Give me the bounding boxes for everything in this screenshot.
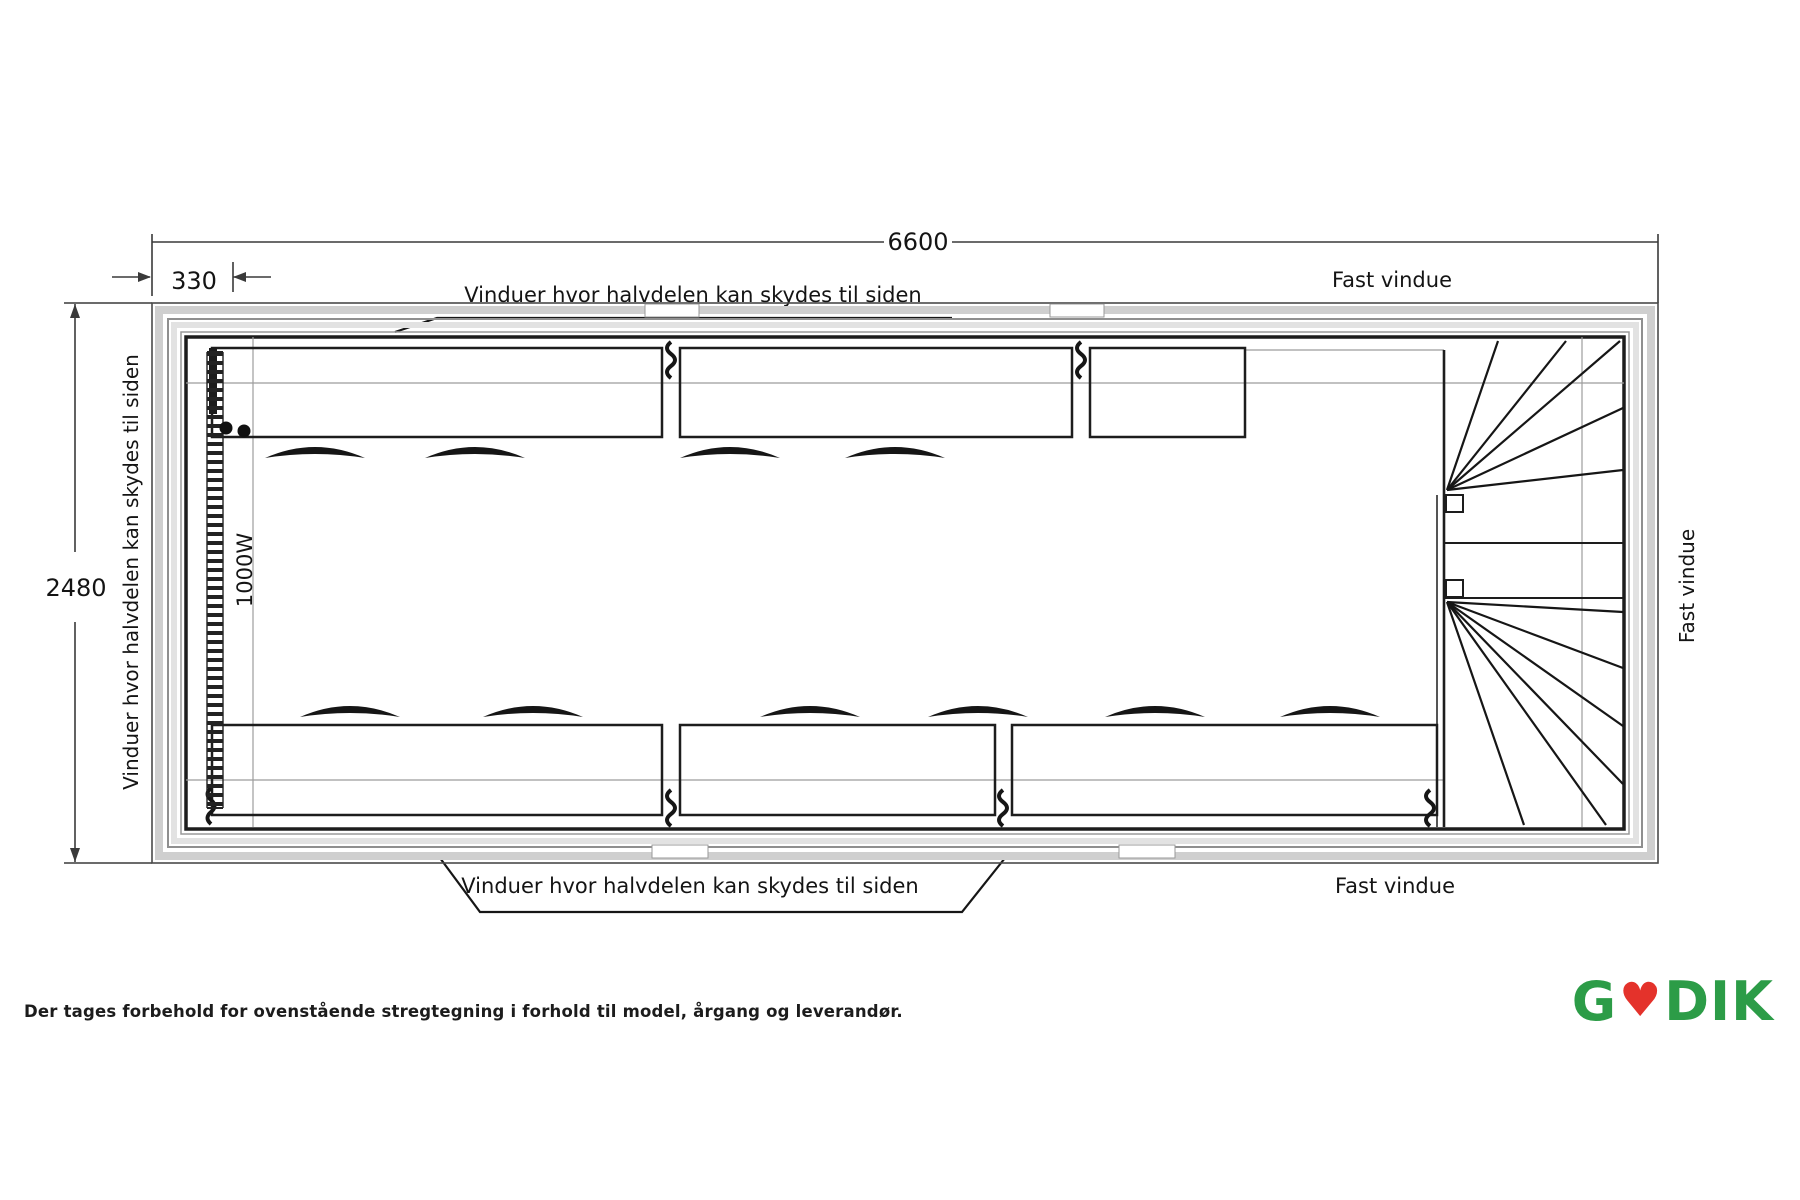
label-top-fixed-window: Fast vindue <box>1332 268 1452 292</box>
disclaimer-text: Der tages forbehold for ovenstående stre… <box>24 1002 903 1021</box>
dim-arrow-right <box>138 272 151 282</box>
label-left-sliding-windows: Vinduer hvor halvdelen kan skydes til si… <box>119 354 143 790</box>
bottom-vent-arcs <box>300 706 1380 717</box>
dimension-width-value: 2480 <box>45 574 106 602</box>
heart-icon: ♥ <box>1619 977 1662 1024</box>
dim-arrow-left <box>233 272 246 282</box>
logo-letters-dik: DIK <box>1664 975 1774 1029</box>
bottom-window-handles <box>208 788 1435 826</box>
door-swing-fan-lower <box>1447 602 1623 825</box>
wall-joint-notches <box>645 304 1175 858</box>
door-hinge-notches <box>1446 495 1463 597</box>
logo-letter-g: G <box>1572 975 1617 1029</box>
label-right-fixed-window: Fast vindue <box>1675 529 1699 643</box>
top-vent-arcs <box>265 447 945 458</box>
dim-arrow-down <box>70 848 80 862</box>
dimension-end-offset-value: 330 <box>171 267 217 295</box>
container-wall-frames <box>152 303 1658 863</box>
dimension-total-length-value: 6600 <box>887 228 948 256</box>
power-socket-dots <box>220 422 251 438</box>
radiator <box>207 352 223 808</box>
floor-plan-page: 6600 330 2480 Vinduer hvor halvdelen kan… <box>0 0 1800 1200</box>
dim-arrow-up <box>70 304 80 318</box>
label-bottom-fixed-window: Fast vindue <box>1335 874 1455 898</box>
top-window-panels <box>212 348 1245 437</box>
bottom-window-panels <box>212 725 1437 815</box>
floor-plan-drawing: 6600 330 2480 Vinduer hvor halvdelen kan… <box>0 0 1800 960</box>
label-bottom-sliding-windows: Vinduer hvor halvdelen kan skydes til si… <box>461 874 918 898</box>
door-swing-fan-upper <box>1447 341 1623 490</box>
interior-glass-lines <box>186 337 1624 827</box>
godik-logo: G♥DIK <box>1572 975 1774 1029</box>
